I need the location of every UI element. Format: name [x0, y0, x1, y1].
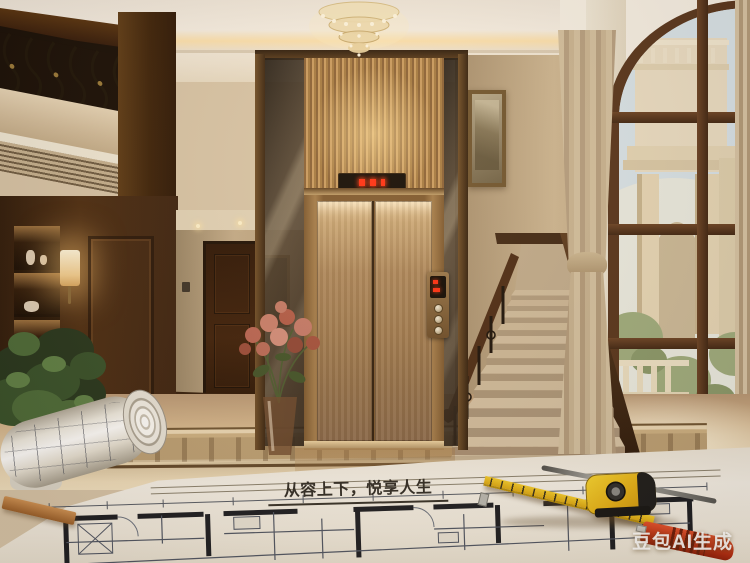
elevator-frame-right [458, 54, 468, 450]
led-digit [359, 179, 365, 186]
flower-vase [231, 293, 329, 461]
cabinet-shelf [14, 226, 60, 270]
call-panel-display [430, 276, 446, 298]
elevator-call-panel [427, 272, 449, 338]
measuring-tape [585, 471, 667, 521]
call-button [434, 315, 443, 324]
call-button [434, 326, 443, 335]
led-arrow [381, 179, 385, 186]
curtain-upper [558, 30, 616, 260]
slogan-text: 从容上下，悦享人生 [268, 473, 449, 506]
deco-vase [40, 255, 47, 265]
downlight [196, 224, 200, 228]
light-switch [182, 282, 190, 292]
sconce-arm [68, 286, 71, 304]
glass-reflection [443, 58, 459, 446]
tied-curtain [558, 30, 616, 454]
panel-light-reflection [304, 58, 444, 188]
call-panel-led [433, 280, 438, 284]
call-panel-led [433, 288, 440, 292]
framed-painting [468, 90, 506, 187]
ai-watermark: 豆包AI生成 [632, 527, 747, 554]
wood-pillar [118, 12, 176, 224]
crystal-chandelier [296, 0, 426, 66]
led-digit [370, 179, 376, 186]
elevator-glass-panel-right [443, 58, 459, 446]
window-mullion [608, 112, 750, 123]
call-button [434, 304, 443, 313]
downlight [238, 221, 242, 225]
curtain-lower [558, 272, 616, 454]
elevator-door-right [375, 201, 432, 441]
deco-vase [26, 250, 35, 265]
wall-sconce [60, 250, 80, 286]
interior-photo-scene: 从容上下，悦享人生 豆包AI生成 [0, 0, 750, 563]
